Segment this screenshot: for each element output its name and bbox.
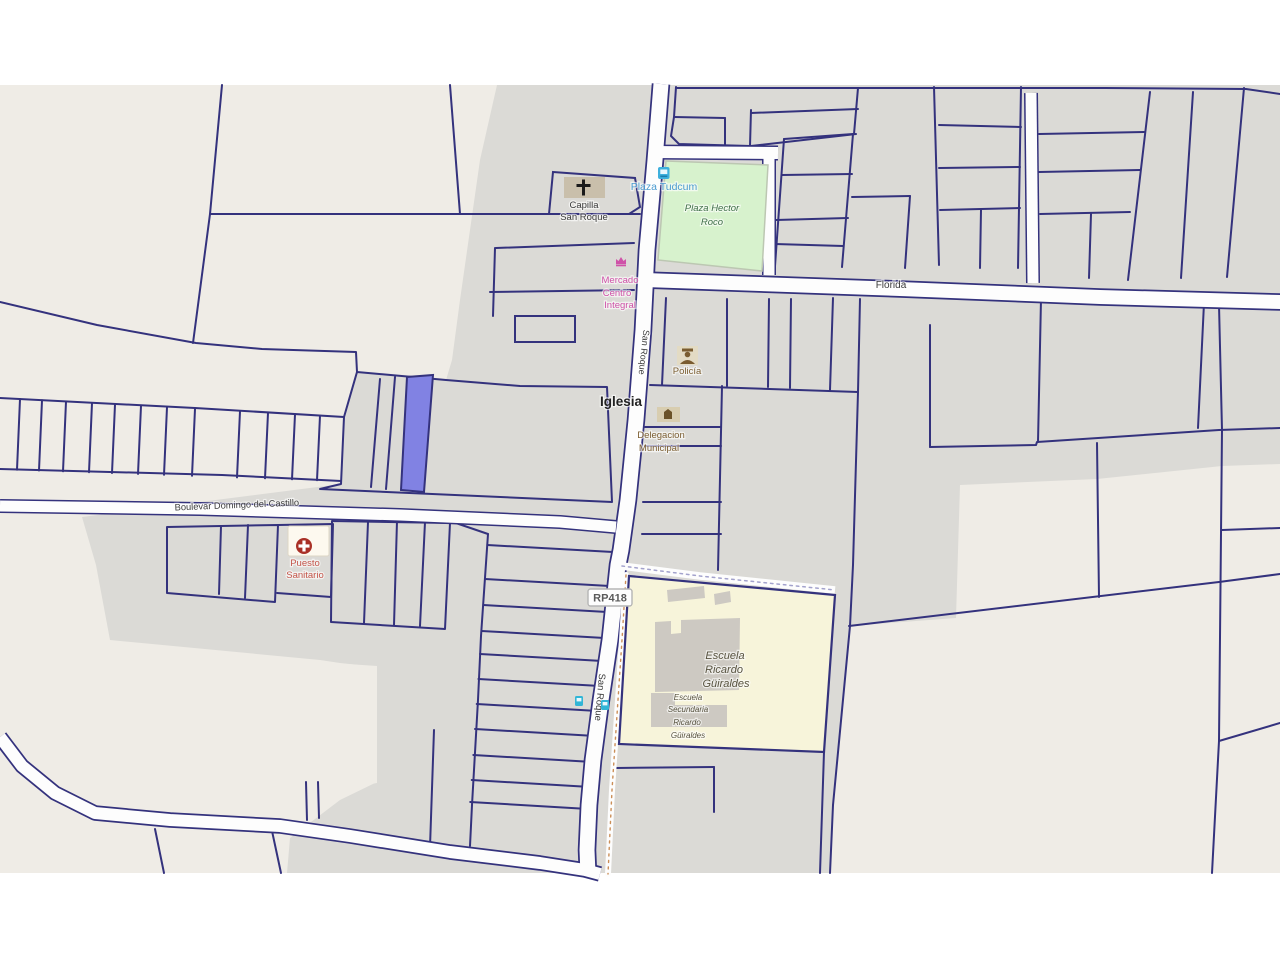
- svg-text:Güiraldes: Güiraldes: [702, 678, 750, 690]
- svg-text:Municipal: Municipal: [639, 443, 679, 454]
- svg-text:Florida: Florida: [876, 280, 907, 291]
- svg-text:RP418: RP418: [593, 593, 627, 605]
- svg-text:San Roque: San Roque: [560, 212, 608, 223]
- svg-text:Integral: Integral: [604, 300, 636, 311]
- svg-text:Secundaria: Secundaria: [668, 705, 709, 714]
- svg-text:Roco: Roco: [701, 217, 723, 228]
- svg-text:Plaza Hector: Plaza Hector: [685, 203, 740, 214]
- svg-text:Plaza Tudcum: Plaza Tudcum: [631, 181, 698, 193]
- svg-text:Puesto: Puesto: [290, 558, 320, 569]
- svg-text:Policía: Policía: [673, 366, 702, 377]
- svg-text:Capilla: Capilla: [569, 200, 599, 211]
- svg-text:Iglesia: Iglesia: [600, 394, 643, 409]
- svg-text:Escuela: Escuela: [705, 650, 744, 662]
- svg-text:Mercado: Mercado: [602, 275, 639, 286]
- svg-text:Delegacion: Delegacion: [637, 430, 685, 441]
- svg-text:Centro: Centro: [603, 288, 632, 299]
- svg-text:Güiraldes: Güiraldes: [671, 731, 705, 740]
- svg-text:Sanitario: Sanitario: [286, 570, 324, 581]
- svg-text:Ricardo: Ricardo: [705, 664, 743, 676]
- svg-text:Escuela: Escuela: [674, 693, 703, 702]
- svg-text:Ricardo: Ricardo: [673, 718, 701, 727]
